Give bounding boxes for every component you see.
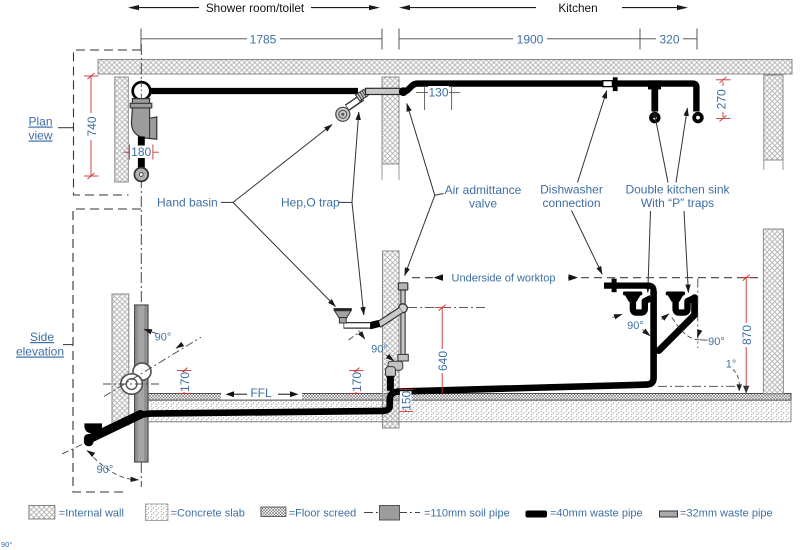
svg-text:Underside of worktop: Underside of worktop <box>452 273 556 285</box>
svg-text:=32mm waste pipe: =32mm waste pipe <box>680 508 773 520</box>
svg-text:170: 170 <box>178 372 192 392</box>
svg-text:270: 270 <box>715 89 729 109</box>
svg-text:elevation: elevation <box>16 345 64 359</box>
svg-text:view: view <box>28 129 52 143</box>
svg-text:=110mm soil pipe: =110mm soil pipe <box>424 508 510 520</box>
svg-text:valve: valve <box>469 197 497 211</box>
svg-text:Hep,O trap: Hep,O trap <box>281 196 340 210</box>
svg-text:Kitchen: Kitchen <box>558 1 597 15</box>
svg-text:Air admittance: Air admittance <box>445 183 522 197</box>
svg-text:320: 320 <box>659 32 679 46</box>
svg-text:1°: 1° <box>726 359 737 371</box>
svg-text:1900: 1900 <box>517 32 544 46</box>
svg-text:180: 180 <box>131 145 151 159</box>
svg-text:90°: 90° <box>708 336 725 348</box>
svg-text:=Floor screed: =Floor screed <box>289 508 357 520</box>
svg-text:90°: 90° <box>155 332 172 344</box>
svg-text:connection: connection <box>542 196 600 210</box>
svg-text:130: 130 <box>428 86 448 100</box>
svg-text:90°: 90° <box>97 464 114 476</box>
svg-text:90°: 90° <box>371 344 388 356</box>
svg-text:=40mm waste pipe: =40mm waste pipe <box>550 508 643 520</box>
svg-text:With “P” traps: With “P” traps <box>641 196 714 210</box>
svg-text:=Internal wall: =Internal wall <box>59 508 124 520</box>
svg-text:870: 870 <box>740 325 754 345</box>
svg-text:740: 740 <box>85 116 99 136</box>
svg-text:FFL: FFL <box>250 386 272 400</box>
svg-text:=Concrete slab: =Concrete slab <box>171 508 245 520</box>
svg-text:Shower room/toilet: Shower room/toilet <box>206 1 305 15</box>
svg-text:90°: 90° <box>1 540 12 549</box>
svg-text:640: 640 <box>436 351 450 371</box>
svg-text:Hand basin: Hand basin <box>157 196 218 210</box>
svg-text:90°: 90° <box>627 320 644 332</box>
svg-text:Plan: Plan <box>28 115 52 129</box>
svg-text:1785: 1785 <box>250 32 277 46</box>
svg-text:150: 150 <box>400 390 414 410</box>
svg-text:170: 170 <box>350 372 364 392</box>
svg-text:Dishwasher: Dishwasher <box>540 183 603 197</box>
svg-text:Double kitchen sink: Double kitchen sink <box>625 183 730 197</box>
svg-text:Side: Side <box>30 330 54 344</box>
